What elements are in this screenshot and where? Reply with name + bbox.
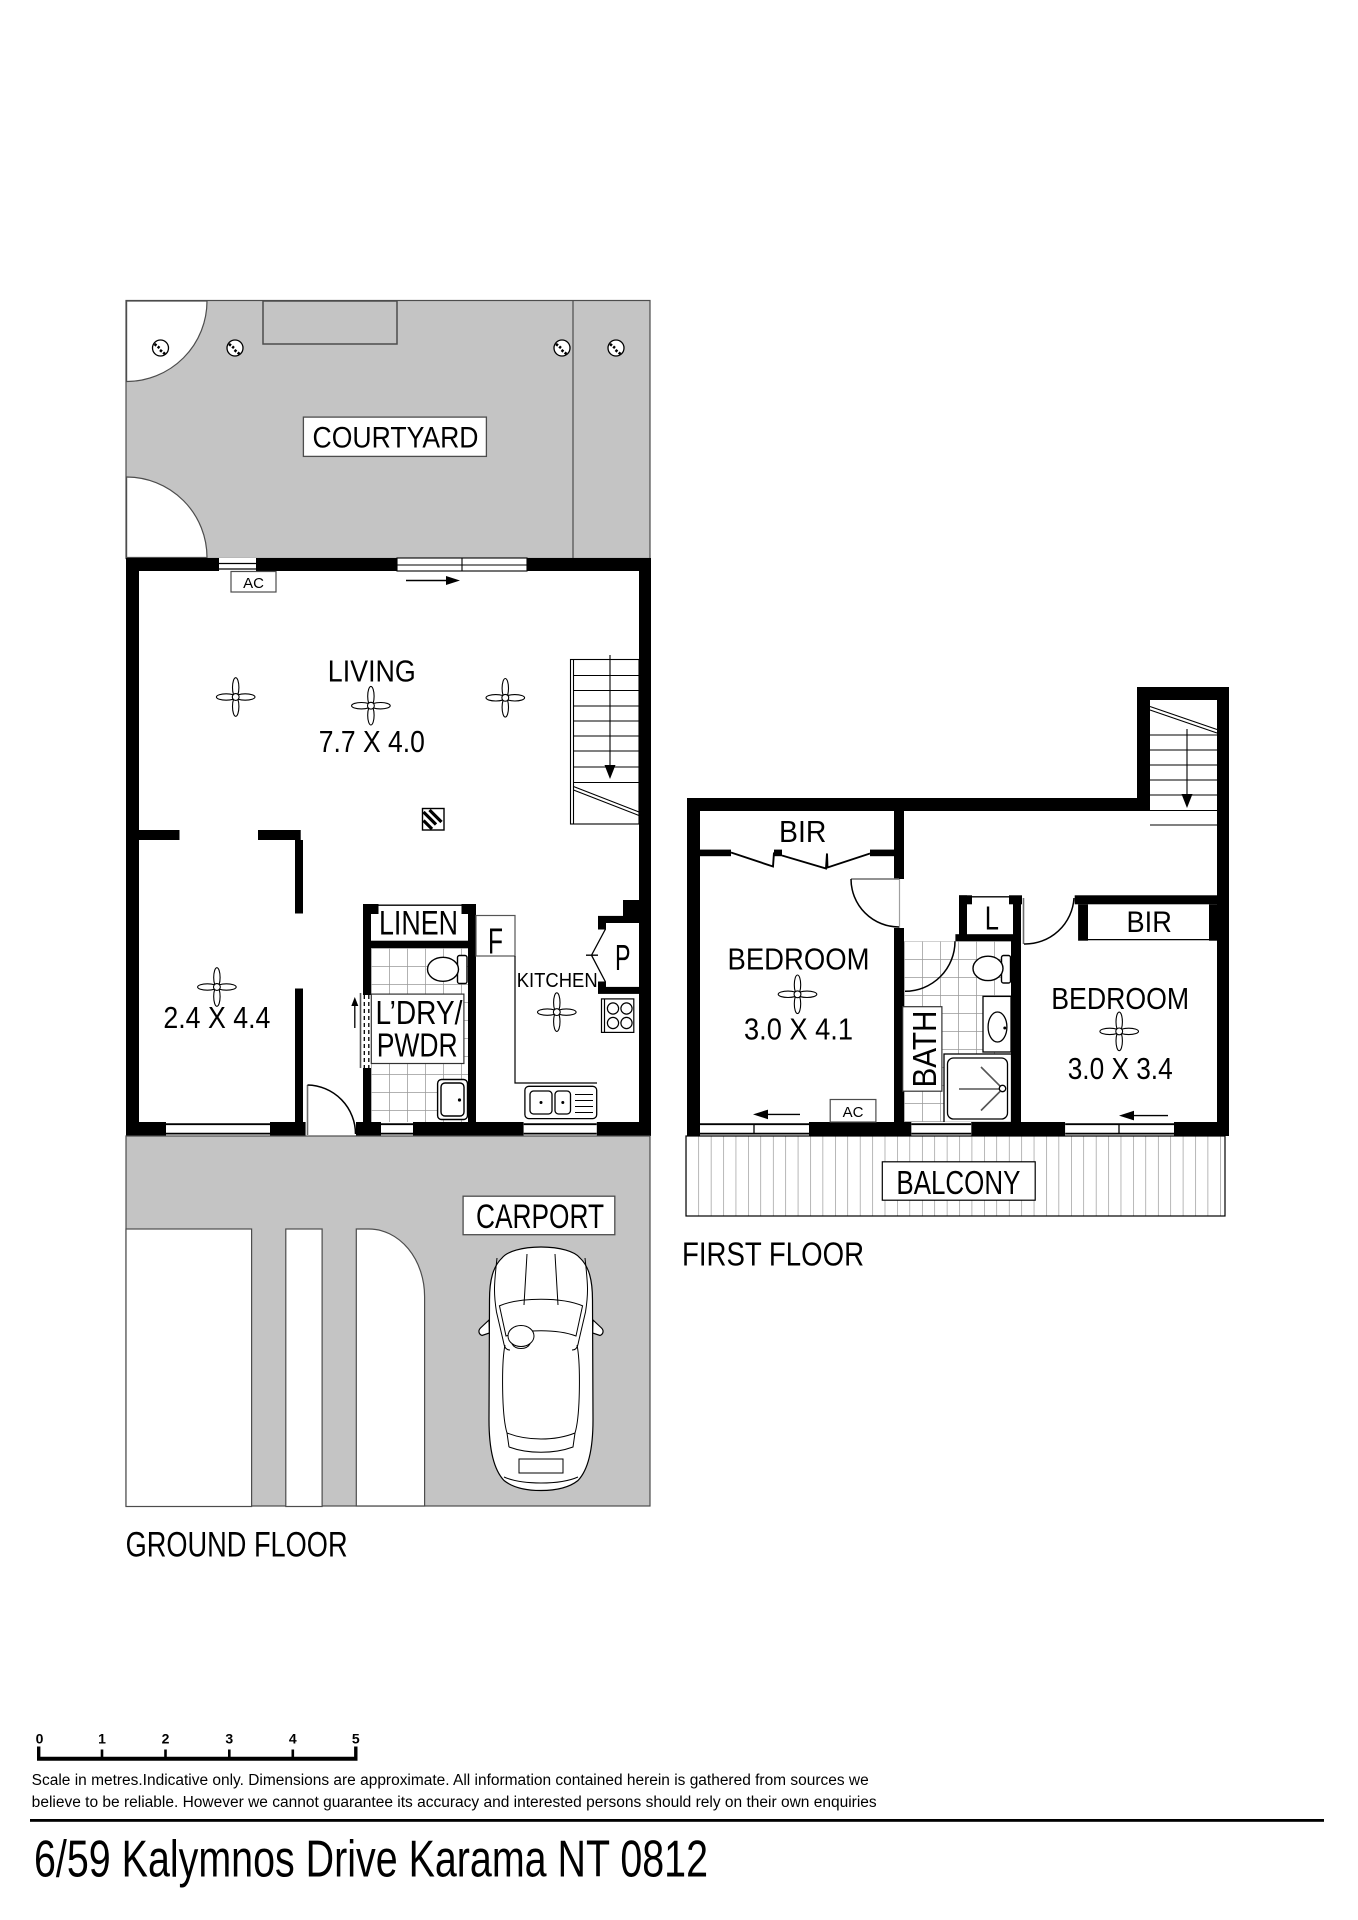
svg-text:6/59 Kalymnos Drive Karama NT: 6/59 Kalymnos Drive Karama NT 0812 [34,1831,708,1889]
svg-text:BEDROOM: BEDROOM [728,942,870,977]
svg-text:believe to be reliable. Howeve: believe to be reliable. However we canno… [32,1794,877,1811]
svg-text:P: P [615,937,631,978]
svg-text:KITCHEN: KITCHEN [517,970,598,992]
svg-text:F: F [488,920,503,961]
svg-text:5: 5 [352,1731,360,1747]
svg-text:LIVING: LIVING [328,653,416,688]
svg-text:CARPORT: CARPORT [476,1198,604,1236]
svg-text:BATH: BATH [906,1011,943,1088]
svg-text:BIR: BIR [779,814,826,849]
svg-text:2: 2 [162,1731,170,1747]
svg-text:COURTYARD: COURTYARD [313,422,479,455]
svg-text:GROUND FLOOR: GROUND FLOOR [126,1526,348,1565]
svg-text:3.0 X 3.4: 3.0 X 3.4 [1068,1051,1173,1086]
svg-text:4: 4 [289,1731,297,1747]
svg-text:BEDROOM: BEDROOM [1051,981,1189,1016]
svg-text:L: L [985,900,999,937]
svg-text:Scale in metres.Indicative onl: Scale in metres.Indicative only. Dimensi… [32,1772,869,1789]
svg-text:AC: AC [243,575,264,592]
svg-text:AC: AC [843,1104,864,1121]
svg-text:0: 0 [36,1731,44,1747]
svg-text:BIR: BIR [1127,906,1172,939]
svg-text:7.7 X 4.0: 7.7 X 4.0 [319,724,425,759]
svg-text:BALCONY: BALCONY [896,1164,1020,1201]
svg-text:3: 3 [225,1731,233,1747]
svg-text:PWDR: PWDR [377,1026,458,1063]
svg-text:FIRST FLOOR: FIRST FLOOR [682,1236,864,1273]
svg-text:1: 1 [98,1731,106,1747]
svg-text:3.0 X 4.1: 3.0 X 4.1 [744,1012,853,1047]
svg-text:LINEN: LINEN [379,905,458,943]
